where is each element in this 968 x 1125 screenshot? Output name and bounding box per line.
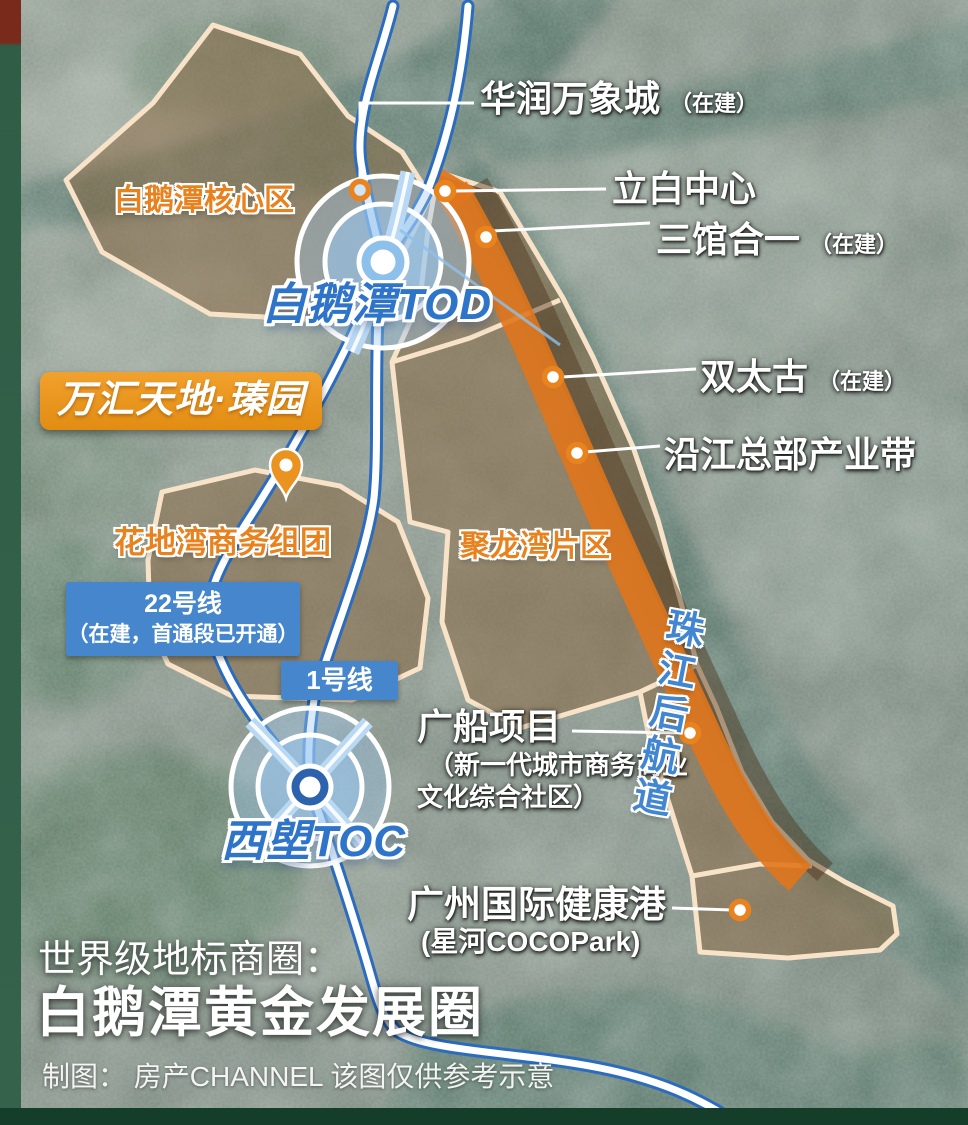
label-yanjiang: 沿江总部产业带 — [664, 436, 916, 475]
frame-bottom-border — [0, 1108, 968, 1125]
under-construction-tag: （在建） — [670, 91, 758, 116]
label-julongwan: 聚龙湾片区 — [460, 531, 610, 563]
marker-sanguan-icon — [478, 229, 495, 246]
metro-line1-badge: 1号线 — [281, 661, 398, 700]
map-infographic: 华润万象城（在建） 立白中心 三馆合一（在建） 白鹅潭核心区 白鹅潭TOD 万汇… — [0, 0, 968, 1125]
label-shuangtaigu: 双太古（在建） — [700, 358, 906, 397]
marker-libai-icon — [437, 183, 454, 200]
marker-yanjiang-icon — [569, 445, 586, 462]
marker-jiankang-icon — [732, 902, 749, 919]
label-huarun: 华润万象城（在建） — [480, 80, 758, 119]
marker-huarun-icon — [352, 182, 369, 199]
label-jiankang-sub: (星河COCOPark) — [421, 927, 640, 957]
project-badge-wanhui: 万汇天地·瑧园 — [40, 372, 322, 430]
label-libai: 立白中心 — [612, 170, 756, 209]
marker-shuangtaigu-icon — [545, 369, 562, 386]
frame-left-border — [0, 0, 21, 1125]
credit-line: 制图： 房产CHANNEL 该图仅供参考示意 — [42, 1062, 554, 1092]
under-construction-tag: （在建） — [810, 232, 898, 257]
page-title-line2: 白鹅潭黄金发展圈 — [36, 984, 484, 1042]
label-sanguan: 三馆合一（在建） — [656, 221, 898, 260]
leader-libai — [453, 189, 606, 191]
metro-line22-status: （在建，首通段已开通） — [68, 623, 299, 646]
label-core-area: 白鹅潭核心区 — [114, 185, 294, 217]
label-toc-station: 西塱TOC — [221, 818, 406, 866]
under-construction-tag: （在建） — [818, 369, 906, 394]
label-huadiwan: 花地湾商务组团 — [114, 526, 331, 559]
label-tod-station: 白鹅潭TOD — [262, 281, 492, 329]
metro-line22-badge: 22号线 （在建，首通段已开通） — [66, 582, 300, 656]
page-title-line1: 世界级地标商圈： — [38, 940, 342, 981]
leader-jiankang — [672, 908, 732, 910]
label-guangchuan-sub2: 文化综合社区） — [417, 783, 599, 811]
marker-guangchuan-icon — [682, 725, 699, 742]
label-guangchuan: 广船项目 — [417, 708, 561, 747]
metro-line22-name: 22号线 — [66, 588, 300, 621]
label-jiankang: 广州国际健康港 — [407, 885, 666, 925]
